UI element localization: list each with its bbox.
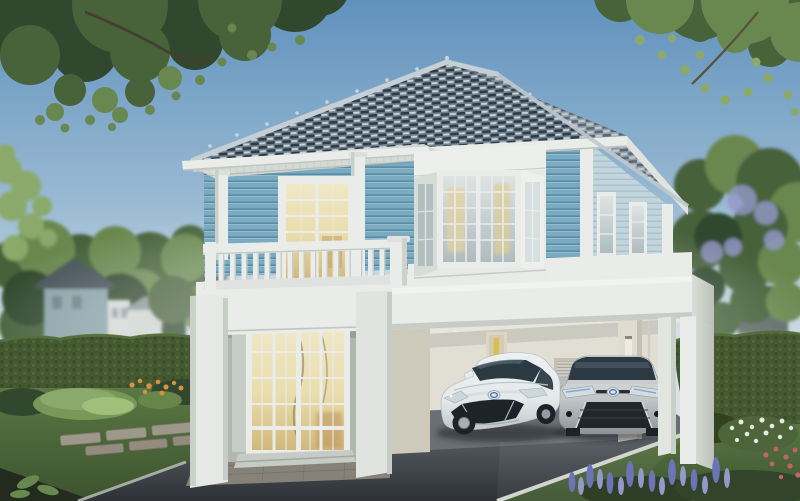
vignette: [0, 0, 800, 501]
rendering-frame: [0, 0, 800, 501]
house-rendering: [0, 0, 800, 501]
